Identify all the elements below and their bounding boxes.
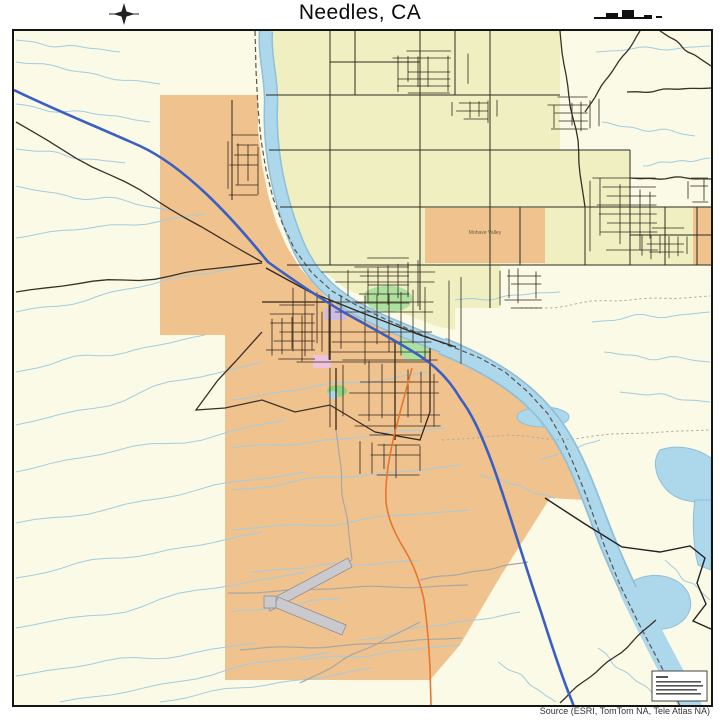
map-page: Needles, CA [0,0,720,720]
runway-apron [264,596,276,608]
scale-bar-icon [592,5,670,32]
mohave-valley-label: Mohave Valley [469,230,502,236]
map-frame: Mohave Valley [12,29,713,707]
lavender-area [325,308,346,320]
legend-box [652,671,707,701]
urban-patch-east-edge [693,207,711,265]
place-labels: Mohave Valley [469,230,502,236]
map-attribution: Source (ESRI, TomTom NA, Tele Atlas NA) [540,706,710,716]
pink-area [313,355,331,368]
land-regions [14,31,711,705]
